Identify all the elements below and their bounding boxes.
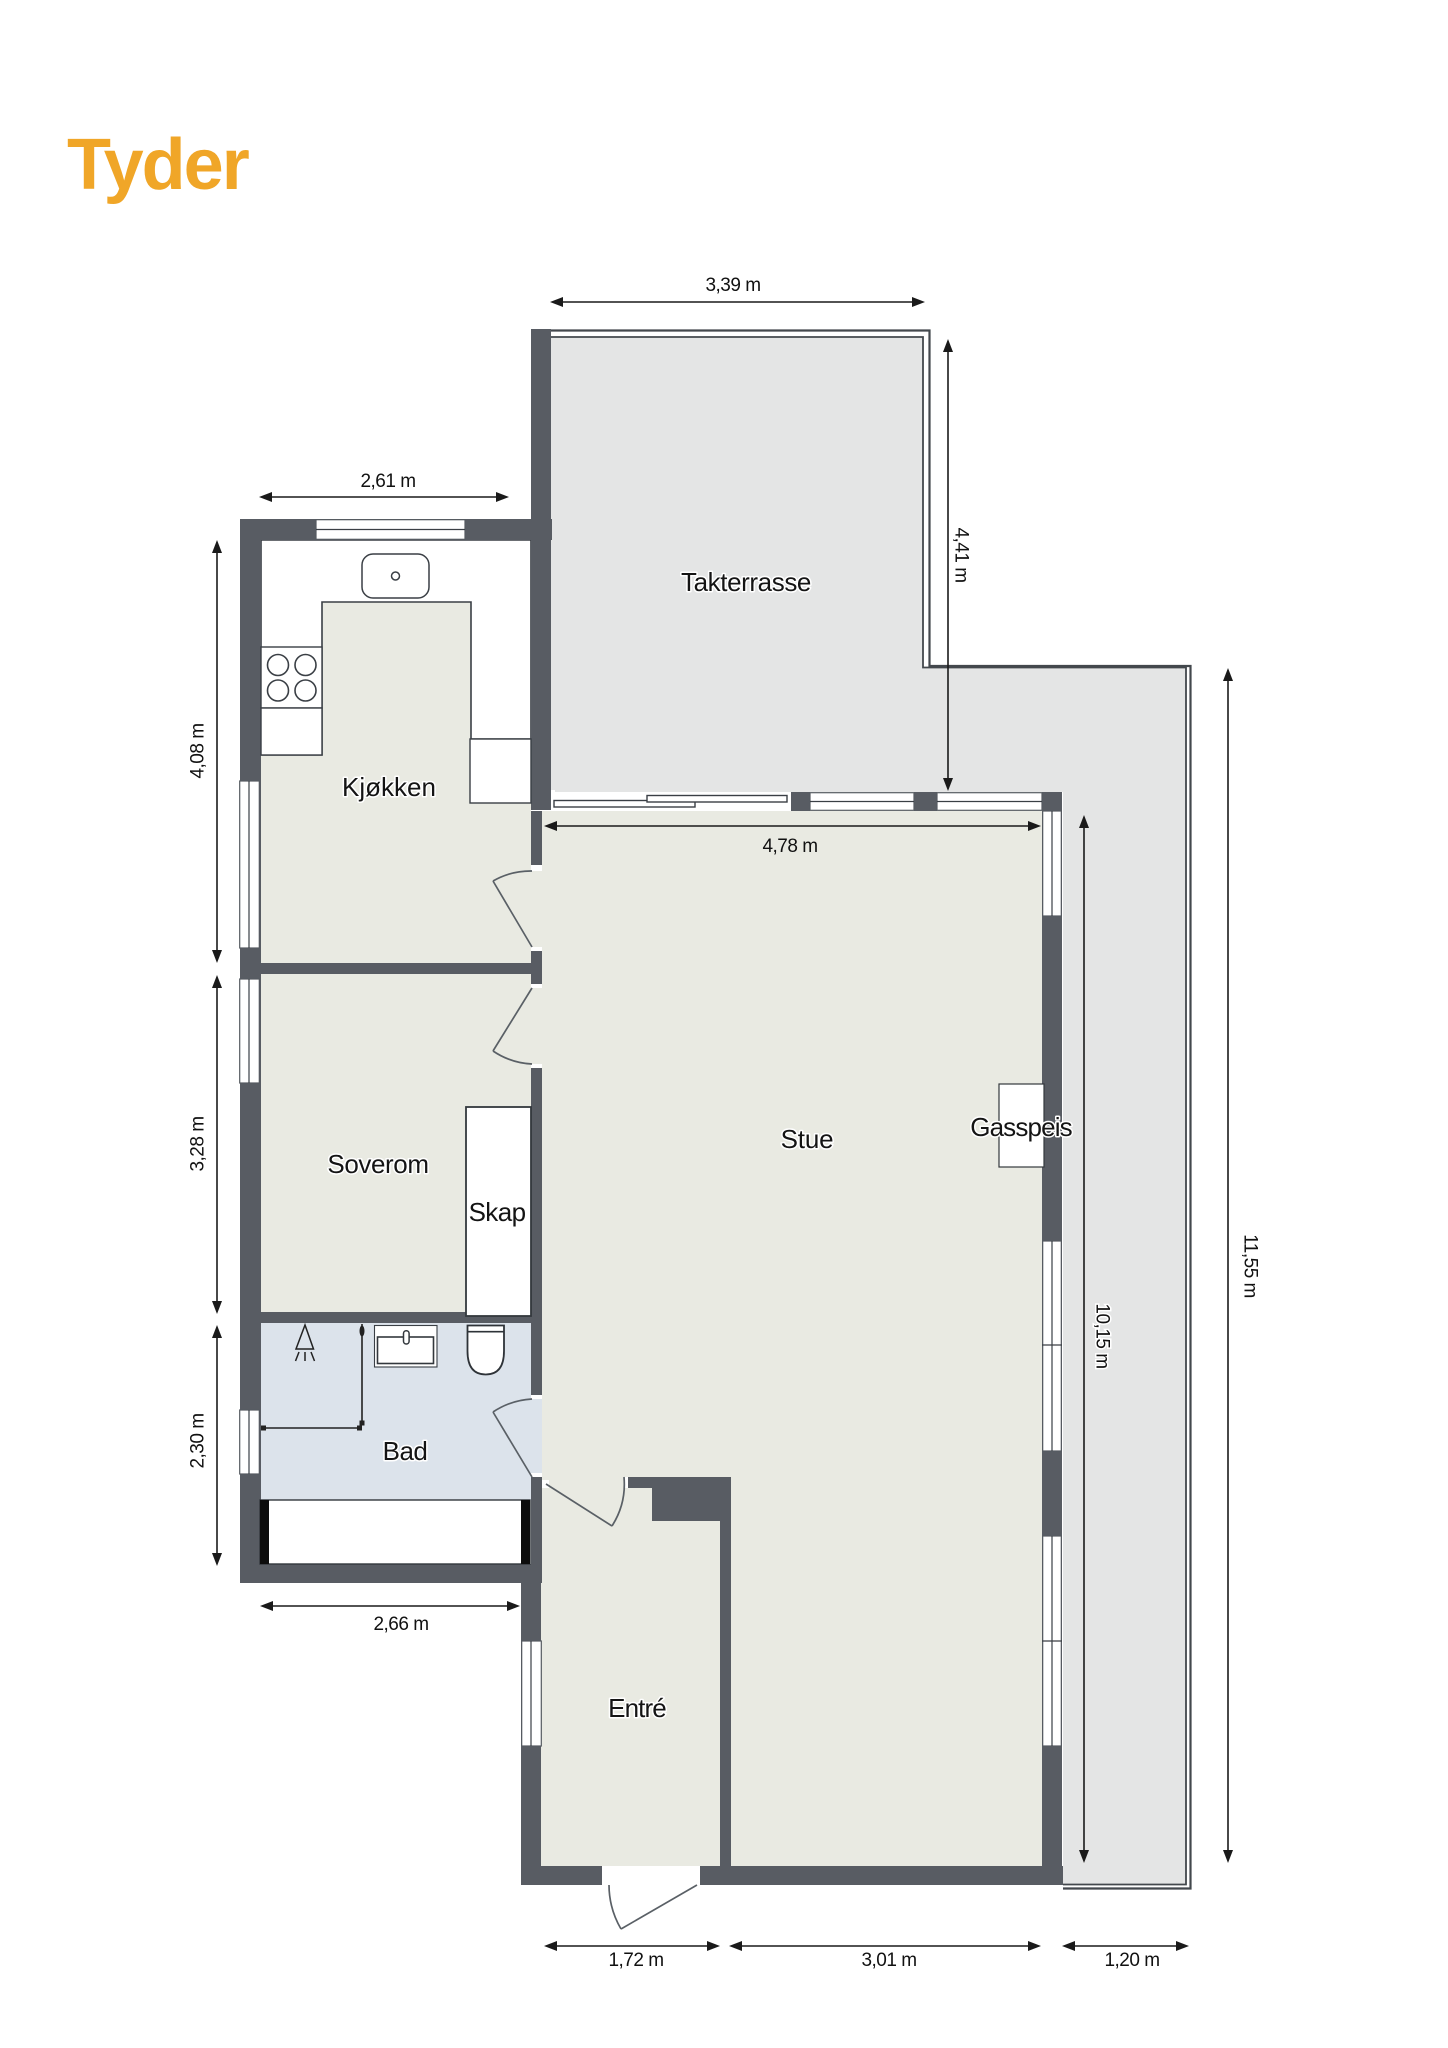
svg-text:1,20 m: 1,20 m xyxy=(1104,1950,1159,1971)
svg-text:Entré: Entré xyxy=(608,1693,666,1723)
svg-text:2,61 m: 2,61 m xyxy=(360,471,415,492)
svg-text:Tyder: Tyder xyxy=(67,125,249,205)
svg-text:4,08 m: 4,08 m xyxy=(188,723,209,778)
svg-text:Skap: Skap xyxy=(469,1197,526,1227)
svg-text:2,30 m: 2,30 m xyxy=(188,1413,209,1468)
svg-text:1,72 m: 1,72 m xyxy=(608,1950,663,1971)
svg-text:Gasspeis: Gasspeis xyxy=(970,1112,1072,1142)
svg-text:Takterrasse: Takterrasse xyxy=(681,567,811,597)
svg-text:3,28 m: 3,28 m xyxy=(188,1116,209,1171)
svg-text:4,41 m: 4,41 m xyxy=(951,527,972,582)
svg-text:10,15 m: 10,15 m xyxy=(1092,1303,1113,1368)
svg-text:Bad: Bad xyxy=(383,1436,428,1466)
svg-text:4,78 m: 4,78 m xyxy=(762,836,817,857)
svg-text:11,55 m: 11,55 m xyxy=(1240,1234,1261,1298)
svg-text:Stue: Stue xyxy=(781,1124,834,1154)
svg-text:Soverom: Soverom xyxy=(327,1149,428,1179)
svg-text:3,01 m: 3,01 m xyxy=(861,1950,916,1971)
svg-text:Kjøkken: Kjøkken xyxy=(342,772,436,802)
svg-text:2,66 m: 2,66 m xyxy=(373,1614,428,1635)
svg-text:3,39 m: 3,39 m xyxy=(705,275,760,296)
